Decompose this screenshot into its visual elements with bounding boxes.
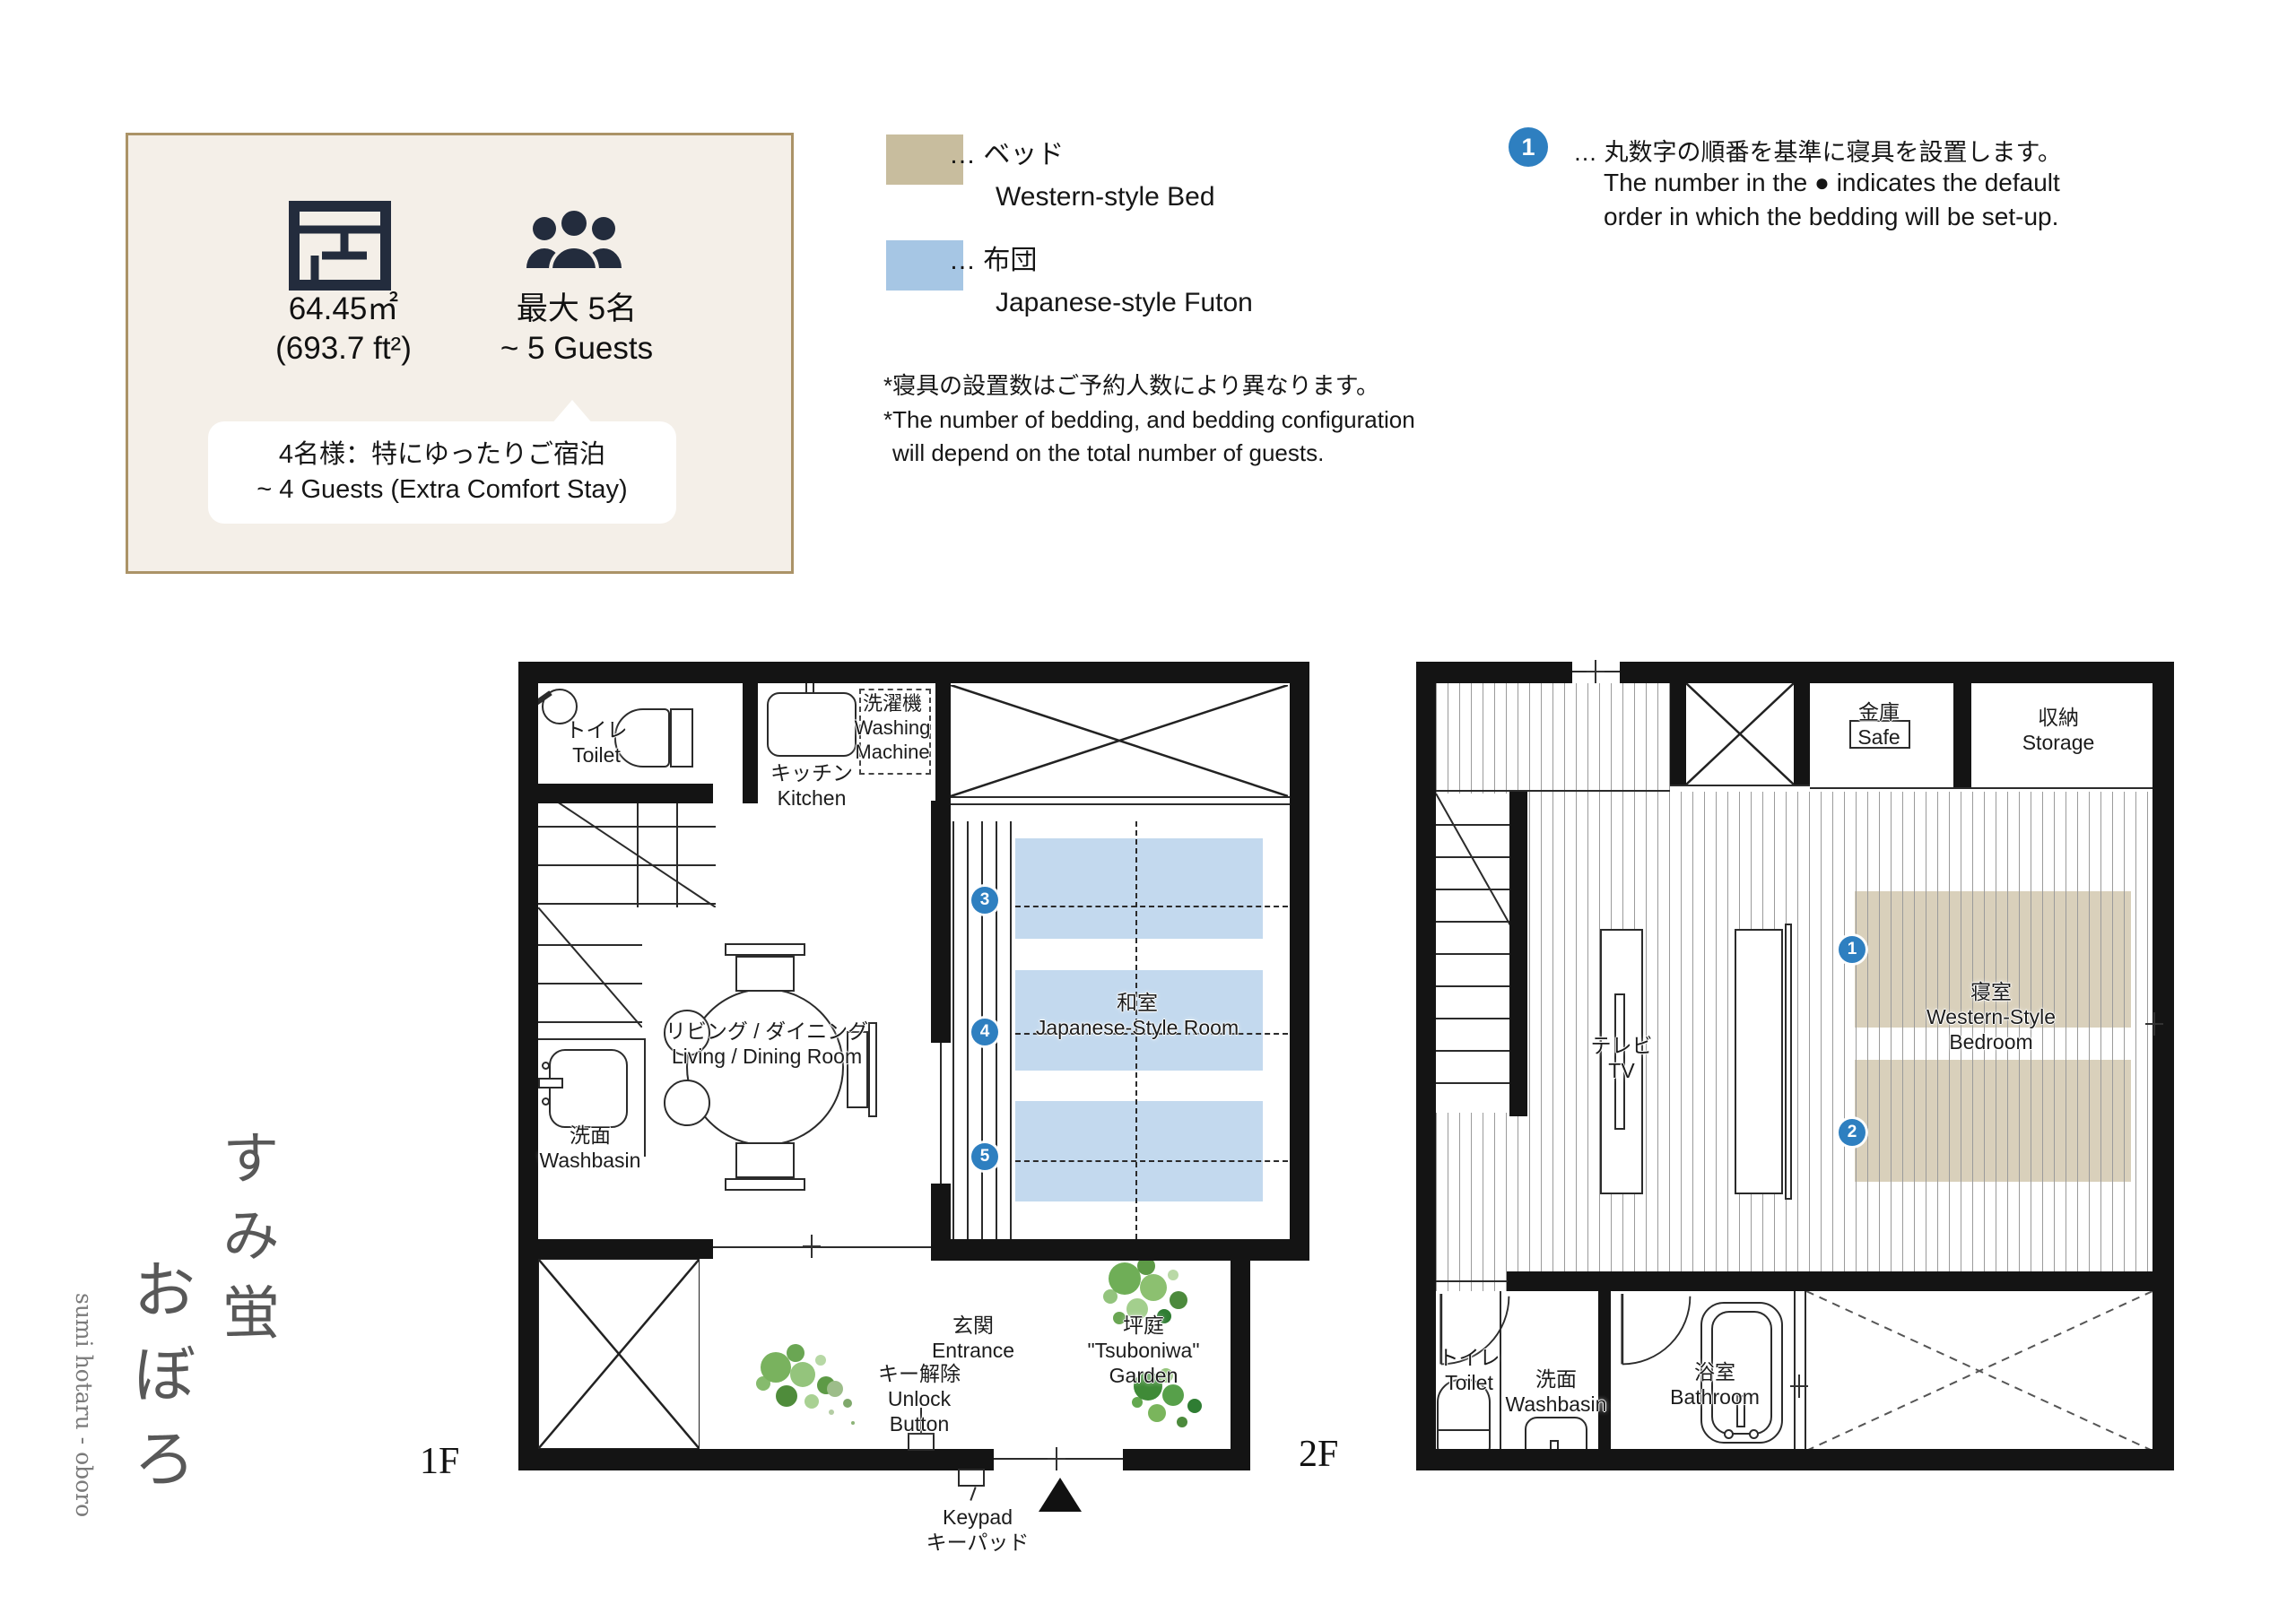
bedroom-label: 寝室Western-StyleBedroom — [1870, 979, 2112, 1054]
floor-hatch — [1436, 683, 1670, 792]
wall-segment — [518, 1239, 713, 1259]
bed-order-circle-2: 2 — [1839, 1119, 1865, 1146]
shelf-2f — [1735, 929, 1783, 1194]
chair-top — [735, 956, 795, 992]
chair-top-back — [725, 943, 805, 956]
futon-order-circle-5: 5 — [971, 1143, 998, 1170]
futon-legend-label: … 布団 Japanese-style Futon — [949, 240, 1253, 324]
wall-segment — [1620, 662, 2174, 683]
floor-label-1f: 1F — [420, 1440, 459, 1483]
bathroom-label: 浴室Bathroom — [1652, 1359, 1778, 1409]
chair-left-2 — [664, 1080, 710, 1126]
futon-order-circle-4: 4 — [971, 1019, 998, 1045]
plant-small — [827, 1381, 843, 1397]
toilet-tank-1f — [670, 708, 693, 768]
opening-tick — [2143, 1012, 2166, 1036]
bathroom-door-arc — [1620, 1294, 1695, 1369]
floor-label-2f: 2F — [1299, 1433, 1338, 1476]
opening-tick — [1787, 1375, 1811, 1398]
wall-segment — [1670, 683, 1686, 786]
closet-x-box — [951, 685, 1288, 796]
tatami-dashed-line — [1015, 1160, 1288, 1162]
wall-segment — [1794, 683, 1810, 786]
wall-segment — [1509, 792, 1527, 1116]
wall-segment — [1507, 1271, 2152, 1291]
futon-3 — [1015, 838, 1263, 939]
keypad-symbol — [958, 1469, 985, 1487]
plant — [761, 1352, 791, 1383]
wall-segment — [931, 1184, 951, 1261]
kitchen-label: キッチンKitchen — [753, 760, 870, 811]
entrance-triangle — [1039, 1478, 1082, 1512]
wall-segment — [951, 1239, 1309, 1261]
keypad-label: Keypadキーパッド — [915, 1505, 1040, 1555]
wall-segment — [1416, 1449, 2174, 1470]
brand-name-jp-2: おぼろ — [115, 1257, 205, 1510]
washbasin-label-1f: 洗面Washbasin — [527, 1123, 653, 1173]
floorplan-sheet: 64.45㎡(693.7 ft²) 最大 5名~ 5 Guests 4名様：特に… — [0, 0, 2296, 1622]
washing-machine-label: 洗濯機WashingMachine — [834, 692, 951, 764]
void-x-box — [538, 1259, 700, 1449]
opening-tick — [1584, 660, 1607, 683]
wall-segment — [1231, 1259, 1250, 1470]
wall-segment — [1953, 683, 1971, 789]
wall-segment — [2152, 662, 2174, 1470]
japanese-room-label: 和室Japanese-Style Room — [1021, 990, 1254, 1040]
tv-label: テレビTV — [1577, 1033, 1666, 1083]
order-number-circle: 1 — [1509, 127, 1548, 167]
guests-icon — [521, 205, 627, 279]
opening-tick — [800, 1235, 823, 1258]
wall-segment — [518, 662, 1309, 683]
unit-capacity: 最大 5名~ 5 Guests — [442, 290, 711, 369]
wall-opening — [1436, 1280, 1508, 1282]
stair-diagonal — [538, 907, 642, 1028]
safe-label: 金庫Safe — [1830, 699, 1928, 750]
tatami-dashed-line — [1015, 906, 1288, 907]
order-note-jp: … 丸数字の順番を基準に寝具を設置します。 — [1573, 133, 2062, 168]
wall-segment — [1416, 662, 1572, 683]
shelf-panel — [1785, 924, 1792, 1200]
wall-segment — [518, 1449, 994, 1470]
toilet-label-1f: トイレToilet — [547, 717, 646, 768]
wall-segment — [518, 784, 713, 803]
balcony-dashed-x — [1806, 1291, 2152, 1451]
futon-order-circle-3: 3 — [971, 887, 998, 914]
floorplan-icon — [288, 200, 392, 291]
garden-tree — [1109, 1262, 1141, 1295]
wall-segment — [1123, 1449, 1250, 1470]
wall-segment — [931, 801, 951, 1043]
brand-name-romaji: sumi hotaru - oboro — [71, 1293, 97, 1562]
wall-segment — [1290, 662, 1309, 1261]
order-note-en1: The number in the ● indicates the defaul… — [1604, 169, 2060, 197]
unlock-button-label: キー解除UnlockButton — [852, 1361, 987, 1436]
wall-opening — [940, 1043, 942, 1184]
futon-5 — [1015, 1101, 1263, 1201]
garden-label: 坪庭"Tsuboniwa"Garden — [1076, 1313, 1211, 1388]
chair-bottom — [735, 1142, 795, 1178]
brand-name-jp-1: すみ蛍 — [204, 1128, 287, 1359]
stair-diagonal — [538, 789, 716, 907]
washbasin-fixture-1f — [549, 1049, 628, 1128]
washbasin-label-2f: 洗面Washbasin — [1500, 1366, 1613, 1417]
washbasin-faucet — [538, 1078, 563, 1089]
bed-order-circle-1: 1 — [1839, 936, 1865, 963]
comfort-stay-note: 4名様：特にゆったりご宿泊 ~ 4 Guests (Extra Comfort … — [208, 421, 676, 524]
order-note-en2: order in which the bedding will be set-u… — [1604, 203, 2058, 231]
unit-area: 64.45㎡(693.7 ft²) — [209, 290, 478, 369]
bed-legend-label: … ベッド Western-style Bed — [949, 134, 1215, 218]
opening-tick — [1045, 1447, 1068, 1470]
storage-label: 収納Storage — [2000, 705, 2117, 755]
living-dining-label: リビング / ダイニングLiving / Dining Room — [628, 1019, 906, 1069]
void-x-box-2f — [1686, 683, 1794, 785]
bedding-count-note: *寝具の設置数はご予約人数により異なります。 *The number of be… — [883, 369, 1415, 471]
chair-bottom-back — [725, 1178, 805, 1191]
partition-line — [1794, 1291, 1796, 1451]
entrance-label: 玄関Entrance — [906, 1313, 1040, 1363]
